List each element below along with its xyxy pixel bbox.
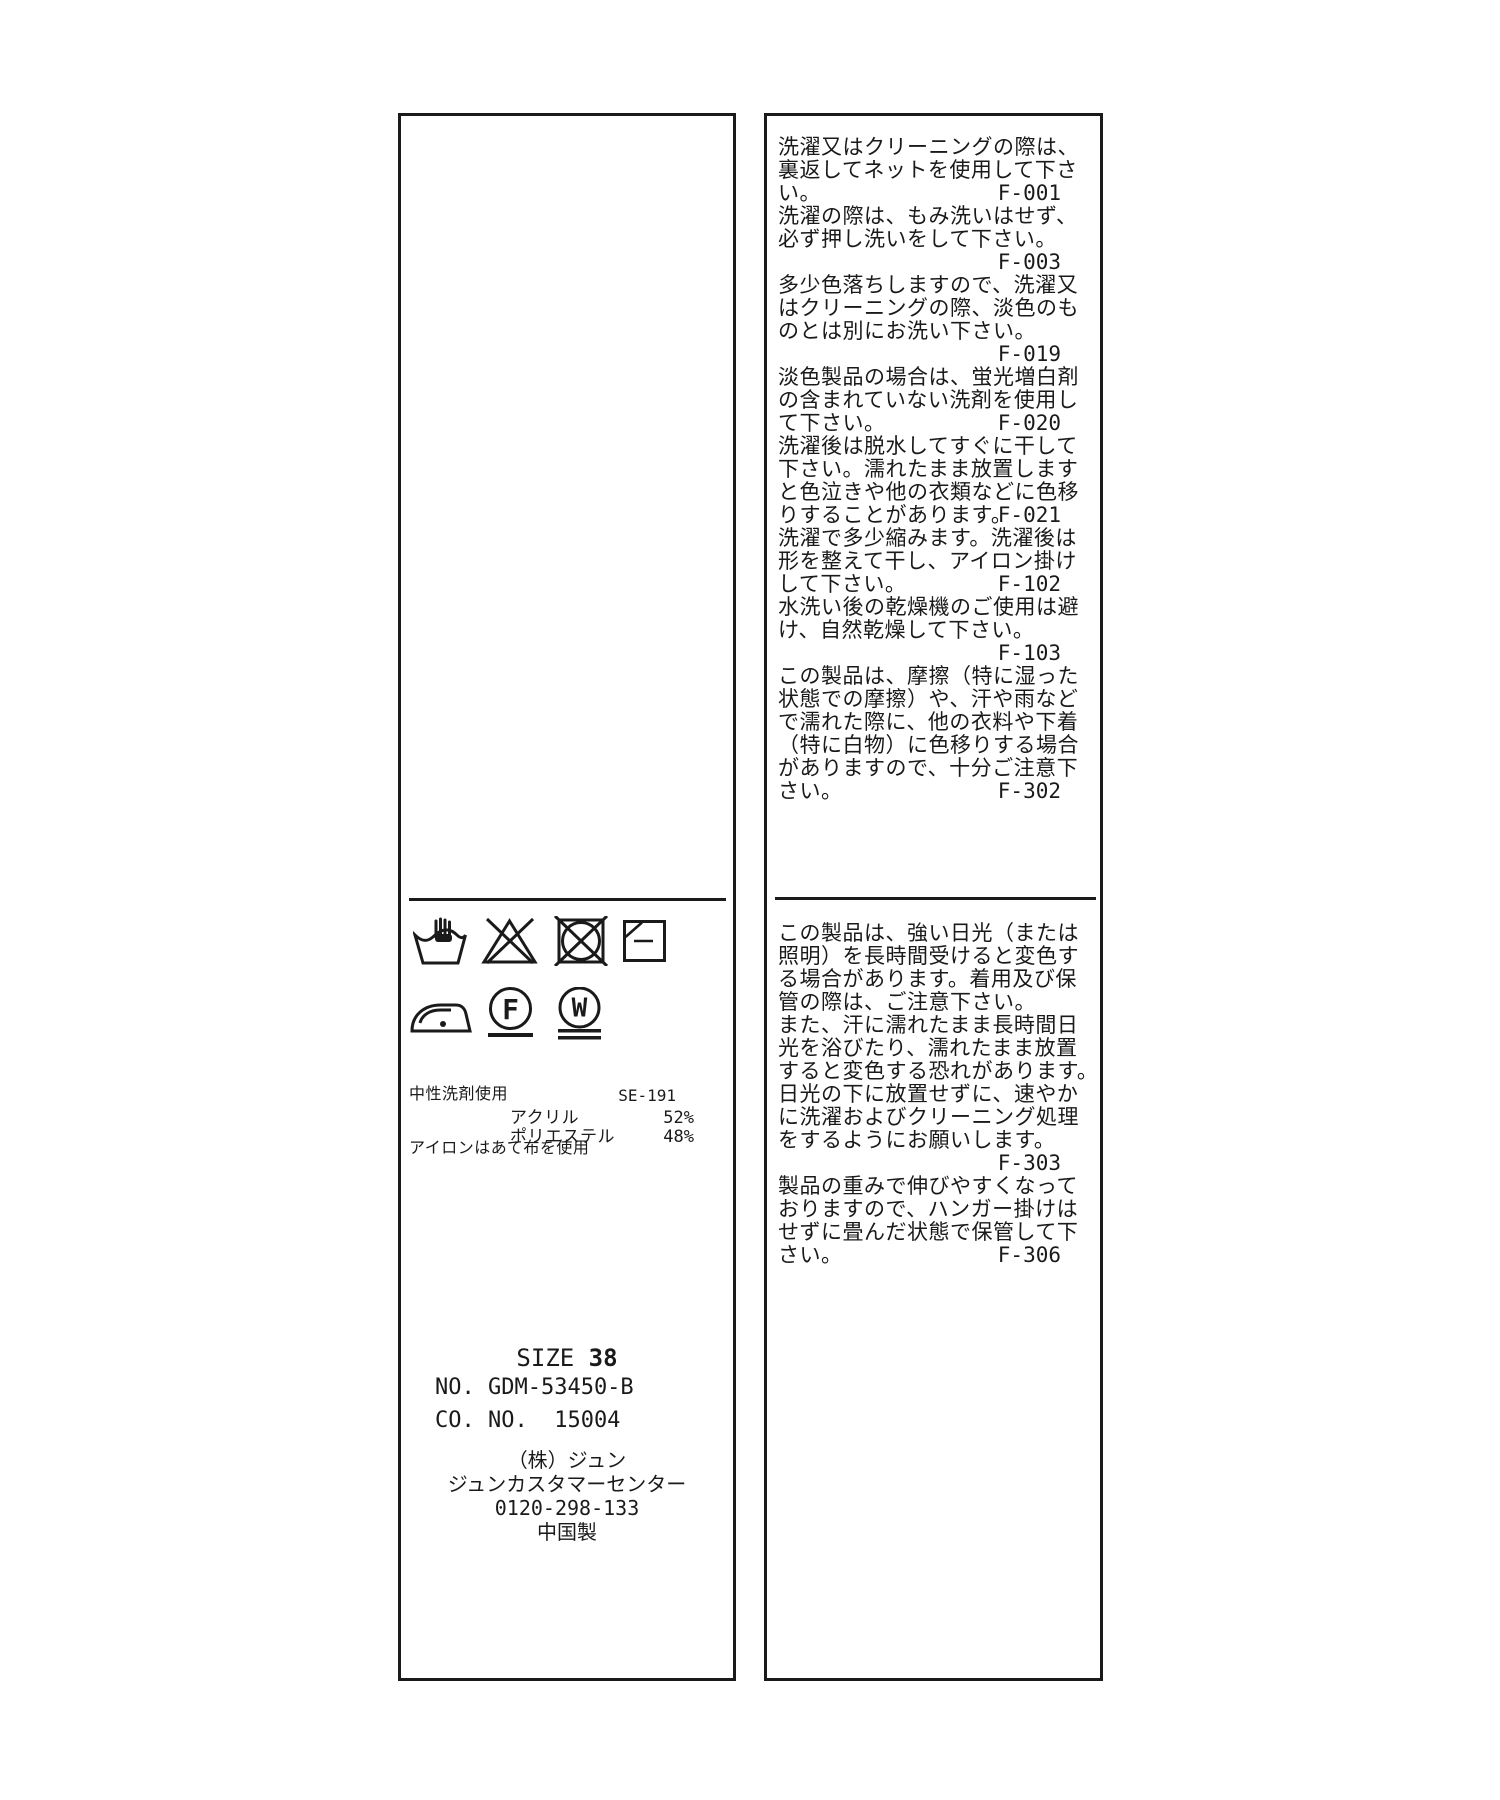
care-instruction-text: また、汗に濡れたまま長時間日	[778, 1013, 1078, 1037]
care-instruction-text: の含まれていない洗剤を使用し	[778, 388, 1078, 412]
care-instruction-text: 必ず押し洗いをして下さい。	[778, 227, 1057, 251]
care-instruction-line: 淡色製品の場合は、蛍光増白剤	[778, 366, 1088, 389]
detergent-note: 中性洗剤使用	[409, 1085, 589, 1103]
care-instruction-text: で濡れた際に、他の衣料や下着	[778, 710, 1078, 734]
size-line: SIZE 38	[401, 1344, 733, 1372]
care-code-label: F-020	[998, 412, 1061, 435]
care-instructions-section-1: 洗濯又はクリーニングの際は、裏返してネットを使用して下さい。F-001洗濯の際は…	[778, 136, 1088, 803]
care-code-label: F-001	[998, 182, 1061, 205]
care-instruction-text: る場合があります。着用及び保	[778, 967, 1077, 991]
care-instruction-text: さい。	[778, 1243, 843, 1267]
flat-dry-in-shade-icon	[623, 920, 666, 962]
care-instruction-line: 管の際は、ご注意下さい。	[778, 991, 1088, 1014]
do-not-bleach-icon	[480, 916, 539, 966]
care-code-label: F-021	[998, 504, 1061, 527]
care-instruction-line: 洗濯又はクリーニングの際は、	[778, 136, 1088, 159]
country-of-origin: 中国製	[401, 1520, 733, 1544]
care-instruction-text: 下さい。濡れたまま放置します	[778, 457, 1078, 481]
care-instruction-line: い。F-001	[778, 182, 1088, 205]
care-instruction-text: がありますので、十分ご注意下	[778, 756, 1078, 780]
care-instruction-text: 洗濯の際は、もみ洗いはせず、	[778, 204, 1078, 228]
company-order-number: CO. NO. 15004	[435, 1408, 620, 1433]
care-instruction-text: て下さい。	[778, 411, 886, 435]
care-instruction-line: で濡れた際に、他の衣料や下着	[778, 711, 1088, 734]
care-instruction-line: 下さい。濡れたまま放置します	[778, 458, 1088, 481]
care-instruction-line: して下さい。F-102	[778, 573, 1088, 596]
care-instruction-line: 光を浴びたり、濡れたまま放置	[778, 1037, 1088, 1060]
care-instruction-text: 淡色製品の場合は、蛍光増白剤	[778, 365, 1079, 389]
care-code-label: F-302	[998, 780, 1061, 803]
care-instruction-line: に洗濯およびクリーニング処理	[778, 1106, 1088, 1129]
care-instruction-text: のとは別にお洗い下さい。	[778, 319, 1036, 343]
care-instruction-text: この製品は、強い日光（または	[778, 921, 1079, 945]
care-instruction-line: 形を整えて干し、アイロン掛け	[778, 550, 1088, 573]
care-instruction-line: この製品は、摩擦（特に湿った	[778, 665, 1088, 688]
care-instruction-line: がありますので、十分ご注意下	[778, 757, 1088, 780]
care-instruction-line: をするようにお願いします。	[778, 1129, 1088, 1152]
iron-low-heat-icon	[409, 996, 473, 1034]
care-code-label: F-102	[998, 573, 1061, 596]
care-instruction-text: 日光の下に放置せずに、速やか	[778, 1082, 1078, 1106]
care-instruction-line: F-103	[778, 642, 1088, 665]
care-instruction-line: すると変色する恐れがあります。	[778, 1060, 1088, 1083]
right-care-panel: 洗濯又はクリーニングの際は、裏返してネットを使用して下さい。F-001洗濯の際は…	[764, 113, 1103, 1681]
care-label-scan: { "care_label": { "colors": { "ink": "#1…	[0, 0, 1500, 1800]
care-instruction-text: すると変色する恐れがあります。	[778, 1059, 1098, 1083]
care-code-label: F-019	[998, 343, 1061, 366]
wet-clean-very-gentle-icon: W	[557, 987, 602, 1041]
divider-line	[409, 898, 726, 901]
care-instruction-line: また、汗に濡れたまま長時間日	[778, 1014, 1088, 1037]
size-value: 38	[589, 1344, 618, 1372]
care-instruction-text: この製品は、摩擦（特に湿った	[778, 664, 1079, 688]
care-instruction-line: さい。F-306	[778, 1244, 1088, 1267]
care-instruction-line: 製品の重みで伸びやすくなって	[778, 1175, 1088, 1198]
customer-center-name: ジュンカスタマーセンター	[401, 1472, 733, 1496]
care-instruction-line: F-003	[778, 251, 1088, 274]
item-number: NO. GDM-53450-B	[435, 1375, 634, 1400]
care-code-label: F-303	[998, 1152, 1061, 1175]
care-instruction-text: はクリーニングの際、淡色のも	[778, 296, 1079, 320]
care-instruction-text: け、自然乾燥して下さい。	[778, 618, 1034, 642]
care-symbols-row-2: F W	[409, 987, 602, 1041]
composition-row: ポリエステル48%	[401, 1128, 733, 1147]
company-info-block: （株）ジュンジュンカスタマーセンター0120-298-133中国製	[401, 1448, 733, 1544]
care-instruction-line: 日光の下に放置せずに、速やか	[778, 1083, 1088, 1106]
dry-clean-petroleum-gentle-icon: F	[487, 987, 534, 1041]
care-instruction-line: け、自然乾燥して下さい。	[778, 619, 1088, 642]
care-instruction-line: 洗濯後は脱水してすぐに干して	[778, 435, 1088, 458]
care-instruction-line: F-019	[778, 343, 1088, 366]
care-instruction-text: 形を整えて干し、アイロン掛け	[778, 549, 1077, 573]
hand-wash-icon	[413, 915, 467, 967]
composition-list: アクリル52%ポリエステル48%	[401, 1109, 733, 1147]
care-instruction-line: おりますので、ハンガー掛けは	[778, 1198, 1088, 1221]
care-instruction-line: の含まれていない洗剤を使用し	[778, 389, 1088, 412]
care-instruction-text: 多少色落ちしますので、洗濯又	[778, 273, 1078, 297]
care-instruction-text: 管の際は、ご注意下さい。	[778, 990, 1036, 1014]
care-instruction-text: をするようにお願いします。	[778, 1128, 1055, 1152]
care-instruction-line: のとは別にお洗い下さい。	[778, 320, 1088, 343]
care-instruction-line: 必ず押し洗いをして下さい。	[778, 228, 1088, 251]
wet-clean-letter: W	[572, 994, 588, 1024]
care-instruction-text: 照明）を長時間受けると変色す	[778, 944, 1079, 968]
left-care-panel: F W 中性洗剤使用 アイロンはあて布を使用 SE-191 アクリル52%ポリエ…	[398, 113, 736, 1681]
size-label: SIZE	[516, 1344, 588, 1372]
care-instruction-line: る場合があります。着用及び保	[778, 968, 1088, 991]
care-instruction-line: と色泣きや他の衣類などに色移	[778, 481, 1088, 504]
composition-percent: 48%	[663, 1128, 694, 1147]
care-instruction-line: 洗濯の際は、もみ洗いはせず、	[778, 205, 1088, 228]
care-instruction-line: この製品は、強い日光（または	[778, 922, 1088, 945]
divider-line	[775, 897, 1096, 900]
dry-clean-letter: F	[502, 993, 519, 1026]
care-instruction-line: せずに畳んだ状態で保管して下	[778, 1221, 1088, 1244]
care-instruction-text: おりますので、ハンガー掛けは	[778, 1197, 1078, 1221]
care-instruction-text: りすることがあります。	[778, 503, 1012, 527]
care-instruction-text: に洗濯およびクリーニング処理	[778, 1105, 1079, 1129]
care-code-label: F-103	[998, 642, 1061, 665]
care-symbols-row-1	[413, 915, 666, 967]
care-instruction-line: 照明）を長時間受けると変色す	[778, 945, 1088, 968]
care-instruction-line: りすることがあります。F-021	[778, 504, 1088, 527]
care-instruction-text: 洗濯又はクリーニングの際は、	[778, 135, 1079, 159]
composition-material: アクリル	[510, 1109, 579, 1128]
care-code-label: F-003	[998, 251, 1061, 274]
composition-percent: 52%	[663, 1109, 694, 1128]
care-instructions-section-2: この製品は、強い日光（または照明）を長時間受けると変色する場合があります。着用及…	[778, 922, 1088, 1267]
do-not-tumble-dry-icon	[552, 916, 610, 966]
care-instruction-line: F-303	[778, 1152, 1088, 1175]
care-instruction-text: と色泣きや他の衣類などに色移	[778, 480, 1079, 504]
care-instruction-text: 洗濯後は脱水してすぐに干して	[778, 434, 1078, 458]
care-instruction-line: 裏返してネットを使用して下さ	[778, 159, 1088, 182]
care-instruction-text: せずに畳んだ状態で保管して下	[778, 1220, 1078, 1244]
care-instruction-text: 製品の重みで伸びやすくなって	[778, 1174, 1078, 1198]
care-instruction-line: （特に白物）に色移りする場合	[778, 734, 1088, 757]
care-instruction-line: て下さい。F-020	[778, 412, 1088, 435]
care-instruction-text: い。	[778, 181, 821, 205]
maker-name: （株）ジュン	[401, 1448, 733, 1472]
care-instruction-text: 裏返してネットを使用して下さ	[778, 158, 1078, 182]
care-instruction-text: （特に白物）に色移りする場合	[778, 733, 1079, 757]
care-instruction-text: 光を浴びたり、濡れたまま放置	[778, 1036, 1078, 1060]
composition-row: アクリル52%	[401, 1109, 733, 1128]
care-instruction-line: はクリーニングの際、淡色のも	[778, 297, 1088, 320]
care-instruction-line: 多少色落ちしますので、洗濯又	[778, 274, 1088, 297]
care-instruction-text: 洗濯で多少縮みます。洗濯後は	[778, 526, 1077, 550]
composition-material: ポリエステル	[510, 1128, 615, 1147]
phone-number: 0120-298-133	[401, 1496, 733, 1520]
care-instruction-line: さい。F-302	[778, 780, 1088, 803]
care-instruction-line: 状態での摩擦）や、汗や雨など	[778, 688, 1088, 711]
quality-tag-code: SE-191	[618, 1086, 676, 1105]
care-instruction-text: さい。	[778, 779, 843, 803]
care-instruction-text: 水洗い後の乾燥機のご使用は避	[778, 595, 1079, 619]
care-instruction-text: して下さい。	[778, 572, 906, 596]
care-code-label: F-306	[998, 1244, 1061, 1267]
care-instruction-text: 状態での摩擦）や、汗や雨など	[778, 687, 1078, 711]
care-instruction-line: 水洗い後の乾燥機のご使用は避	[778, 596, 1088, 619]
care-instruction-line: 洗濯で多少縮みます。洗濯後は	[778, 527, 1088, 550]
